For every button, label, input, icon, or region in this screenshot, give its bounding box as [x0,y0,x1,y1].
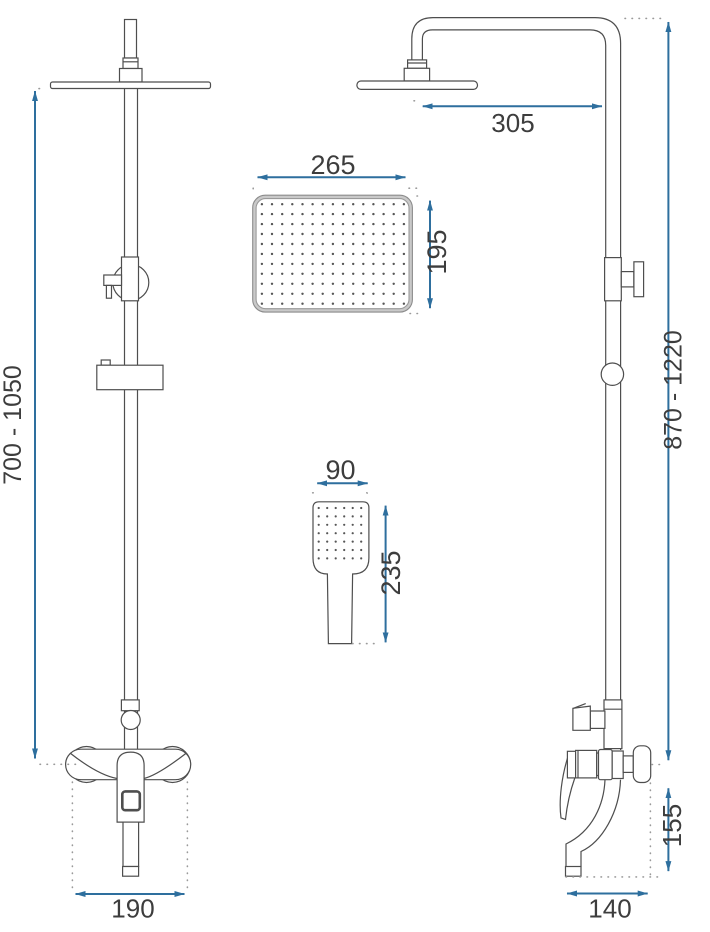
svg-text:190: 190 [111,894,154,924]
svg-text:235: 235 [376,550,406,595]
svg-text:305: 305 [491,108,534,138]
svg-text:870 - 1220: 870 - 1220 [660,330,688,450]
svg-text:700 - 1050: 700 - 1050 [0,365,27,485]
svg-text:265: 265 [310,150,355,180]
svg-text:155: 155 [657,804,687,847]
svg-text:90: 90 [325,455,355,485]
svg-text:195: 195 [422,229,452,274]
svg-text:140: 140 [588,894,631,924]
